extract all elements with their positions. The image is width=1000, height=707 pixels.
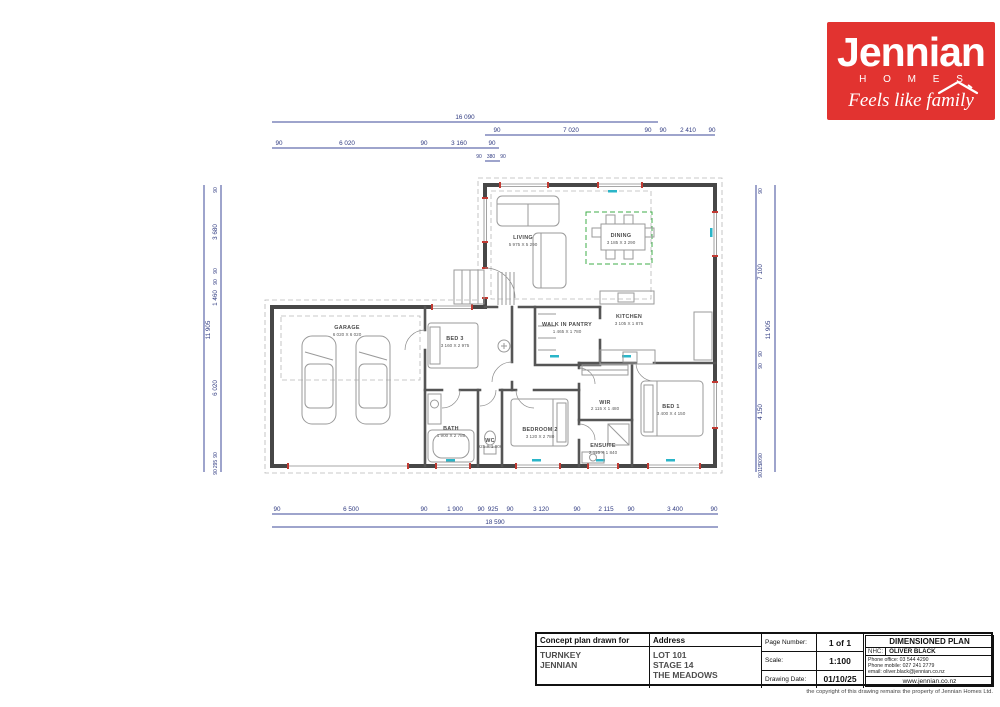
dim-label: 90 bbox=[213, 452, 219, 458]
dim-label: 925 bbox=[488, 506, 499, 513]
dim-label: 2 410 bbox=[680, 127, 696, 134]
dim-label: 2 115 bbox=[598, 506, 614, 513]
room-size: 925 X 1 900 bbox=[478, 444, 503, 449]
email-address: email: oliver.black@jennian.co.nz bbox=[868, 669, 991, 675]
logo-tagline: Feels like family bbox=[827, 90, 995, 112]
dimensions-left: 11 905 90 3 680 90 90 1 460 6 020 90 295… bbox=[200, 184, 225, 475]
nhc-label: NHC: bbox=[866, 648, 885, 655]
dim-label: 90 bbox=[273, 506, 281, 513]
chair-icon bbox=[606, 250, 615, 259]
dim-label: 90 bbox=[627, 506, 635, 513]
scale-value: 1:100 bbox=[816, 652, 863, 669]
plan-type-title: DIMENSIONED PLAN bbox=[866, 636, 993, 648]
room-size: 6 020 X 6 020 bbox=[333, 332, 362, 337]
dim-label: 295 bbox=[213, 460, 219, 469]
room-size: 3 400 X 4 150 bbox=[657, 411, 686, 416]
roof-icon bbox=[937, 80, 979, 95]
dim-label: 11 905 bbox=[205, 320, 212, 339]
address-line: THE MEADOWS bbox=[653, 670, 758, 680]
chair-icon bbox=[645, 228, 654, 237]
dim-label: 6 020 bbox=[339, 140, 355, 147]
room-size: 3 185 X 3 290 bbox=[607, 240, 636, 245]
dim-label: 90 bbox=[758, 472, 764, 478]
dim-label: 90 bbox=[758, 363, 764, 369]
copyright-note: the copyright of this drawing remains th… bbox=[535, 689, 993, 695]
kitchen-bench-icon bbox=[694, 312, 712, 360]
drawing-date-label: Drawing Date: bbox=[762, 676, 816, 683]
title-block-address-column: Address LOT 101 STAGE 14 THE MEADOWS bbox=[650, 634, 762, 688]
dim-label: 3 400 bbox=[667, 506, 683, 513]
dim-label: 90 bbox=[477, 506, 485, 513]
vanity-icon bbox=[428, 394, 441, 424]
furniture-bath-wc bbox=[428, 394, 496, 462]
contact-details: Phone office: 03 544 4290 Phone mobile: … bbox=[866, 656, 993, 677]
dim-label: 90 bbox=[506, 506, 514, 513]
concept-plan-page: LIVING 5 975 X 5 290 DINING 3 185 X 3 29… bbox=[0, 0, 1000, 707]
jennian-logo: Jennian H O M E S Feels like family bbox=[827, 22, 995, 120]
room-name: KITCHEN bbox=[616, 314, 642, 320]
address-label: Address bbox=[650, 634, 761, 647]
room-size: 3 160 X 2 975 bbox=[441, 343, 470, 348]
page-number-label: Page Number: bbox=[762, 639, 816, 646]
dim-label: 90 bbox=[644, 127, 652, 134]
dim-label: 90 bbox=[493, 127, 501, 134]
chair-icon bbox=[624, 250, 633, 259]
title-block-contact-column: DIMENSIONED PLAN NHC: OLIVER BLACK Phone… bbox=[864, 634, 995, 688]
room-name: DINING bbox=[611, 233, 632, 239]
dim-label: 90 bbox=[476, 154, 482, 160]
dim-label: 90 bbox=[500, 154, 506, 160]
dim-label: 90 bbox=[488, 140, 496, 147]
dimensions-bottom: 90 6 500 90 1 900 90 925 90 3 120 90 2 1… bbox=[271, 506, 719, 531]
room-name: GARAGE bbox=[334, 325, 360, 331]
room-size: 3 105 X 1 875 bbox=[615, 321, 644, 326]
title-block-meta-column: Page Number: 1 of 1 Scale: 1:100 Drawing… bbox=[762, 634, 864, 688]
dim-label: 90 bbox=[659, 127, 667, 134]
client-name: TURNKEY JENNIAN bbox=[537, 647, 649, 673]
sofa-icon bbox=[533, 233, 566, 288]
room-name: BEDROOM 2 bbox=[522, 427, 557, 433]
scale-label: Scale: bbox=[762, 657, 816, 664]
room-size: 3 120 X 2 780 bbox=[526, 434, 555, 439]
chair-icon bbox=[592, 228, 601, 237]
address-line: STAGE 14 bbox=[653, 660, 758, 670]
dim-label: 90 bbox=[758, 459, 764, 465]
dim-label: 90 bbox=[708, 127, 716, 134]
room-name: WALK IN PANTRY bbox=[542, 322, 592, 328]
chair-icon bbox=[624, 215, 633, 224]
dim-label: 90 bbox=[758, 188, 764, 194]
scale-row: Scale: 1:100 bbox=[762, 652, 863, 670]
room-size: 2 115 X 1 480 bbox=[591, 406, 620, 411]
dimensions-right: 90 7 100 90 90 4 150 90 90 115 90 11 905 bbox=[752, 184, 779, 478]
room-size: 2 115 X 1 840 bbox=[589, 450, 618, 455]
dim-label: 90 bbox=[213, 187, 219, 193]
dim-label: 4 150 bbox=[757, 404, 764, 420]
client-line: TURNKEY bbox=[540, 650, 646, 660]
nhc-row: NHC: OLIVER BLACK bbox=[866, 648, 993, 656]
logo-brand-text: Jennian bbox=[827, 31, 995, 73]
room-name: BED 3 bbox=[446, 336, 463, 342]
address-line: LOT 101 bbox=[653, 650, 758, 660]
dim-label: 6 500 bbox=[343, 506, 359, 513]
room-size: 1 900 X 2 780 bbox=[437, 433, 466, 438]
dim-label: 1 900 bbox=[447, 506, 463, 513]
dim-label: 90 bbox=[420, 506, 428, 513]
dim-label: 380 bbox=[487, 154, 496, 160]
website-link[interactable]: www.jennian.co.nz bbox=[866, 677, 993, 686]
dim-label: 90 bbox=[213, 279, 219, 285]
dim-label: 115 bbox=[758, 464, 764, 472]
dim-label: 7 020 bbox=[563, 127, 579, 134]
dimensions-top: 16 090 90 7 020 90 90 2 410 90 90 6 020 … bbox=[271, 114, 716, 165]
client-line: JENNIAN bbox=[540, 660, 646, 670]
chair-icon bbox=[606, 215, 615, 224]
room-name: BED 1 bbox=[662, 404, 679, 410]
dim-label: 3 160 bbox=[451, 140, 467, 147]
dim-label: 90 bbox=[275, 140, 283, 147]
dim-label: 90 bbox=[758, 351, 764, 357]
dim-label: 1 460 bbox=[212, 290, 219, 306]
dim-label: 90 bbox=[213, 469, 219, 475]
door-swing-arcs bbox=[405, 268, 654, 440]
concept-plan-label: Concept plan drawn for bbox=[537, 634, 649, 647]
title-block-client-column: Concept plan drawn for TURNKEY JENNIAN bbox=[537, 634, 650, 688]
dim-label: 90 bbox=[710, 506, 718, 513]
room-size: 1 465 X 1 780 bbox=[553, 329, 582, 334]
dim-label: 90 bbox=[758, 453, 764, 459]
dim-label: 3 680 bbox=[212, 224, 219, 240]
nhc-value: OLIVER BLACK bbox=[885, 648, 993, 655]
address-value: LOT 101 STAGE 14 THE MEADOWS bbox=[650, 647, 761, 683]
dim-label: 18 590 bbox=[485, 519, 505, 526]
dim-label: 11 905 bbox=[765, 320, 772, 339]
page-number-value: 1 of 1 bbox=[816, 634, 863, 651]
dim-label: 3 120 bbox=[533, 506, 549, 513]
dim-label: 90 bbox=[573, 506, 581, 513]
dim-label: 90 bbox=[420, 140, 428, 147]
title-block: Concept plan drawn for TURNKEY JENNIAN A… bbox=[535, 632, 993, 686]
dim-label: 7 100 bbox=[757, 264, 764, 280]
dim-label: 90 bbox=[213, 268, 219, 274]
room-name: LIVING bbox=[513, 235, 533, 241]
dim-label: 6 020 bbox=[212, 380, 219, 396]
drawing-date-row: Drawing Date: 01/10/25 bbox=[762, 671, 863, 688]
dim-label: 16 090 bbox=[455, 114, 475, 121]
drawing-date-value: 01/10/25 bbox=[816, 671, 863, 688]
page-number-row: Page Number: 1 of 1 bbox=[762, 634, 863, 652]
room-name: BATH bbox=[443, 426, 459, 432]
room-name: ENSUITE bbox=[590, 443, 616, 449]
room-size: 5 975 X 5 290 bbox=[509, 242, 538, 247]
sink-icon bbox=[618, 293, 634, 302]
